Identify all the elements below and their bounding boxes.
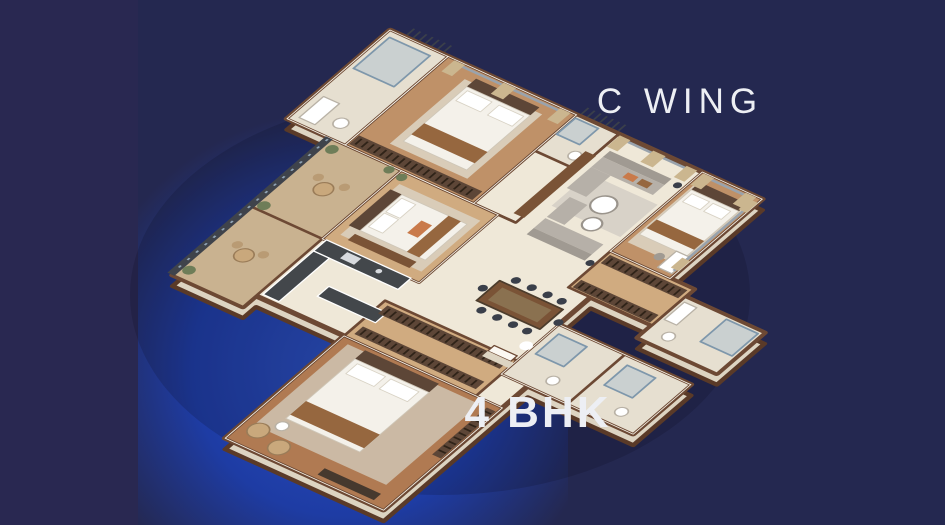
- wing-label: C WING: [597, 82, 763, 121]
- unit-type-label: 4 BHK: [464, 388, 611, 437]
- brochure-page: C WING 4 BHK: [0, 0, 945, 525]
- floor-plan-illustration: C WING 4 BHK: [0, 0, 945, 525]
